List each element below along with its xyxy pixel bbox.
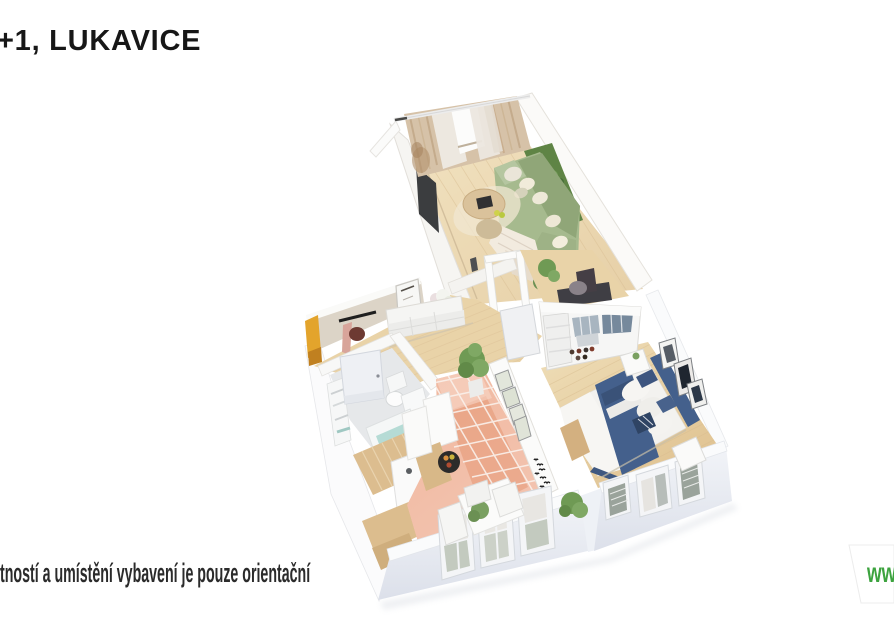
svg-text:www.: www. bbox=[866, 557, 894, 589]
